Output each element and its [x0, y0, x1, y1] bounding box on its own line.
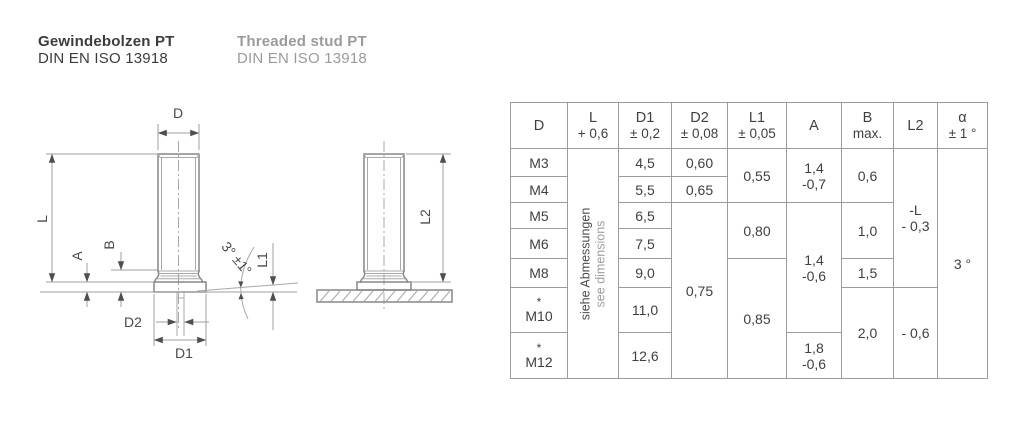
dimension-label-d1: D1	[175, 345, 193, 361]
dimension-label-l: L	[34, 215, 50, 223]
col-header-l2: L2	[894, 103, 938, 149]
row-label-m3: M3	[511, 149, 568, 177]
angle-label: 3° ±1°	[218, 239, 255, 279]
col-header-b: Bmax.	[842, 103, 894, 149]
l-note-cell: siehe Abmessungen see dimensions	[568, 149, 619, 379]
datasheet-page: Gewindebolzen PT DIN EN ISO 13918 Thread…	[0, 0, 1024, 438]
table-cell: 12,6	[619, 333, 672, 379]
col-header-a: A	[787, 103, 842, 149]
table-cell: 11,0	[619, 288, 672, 333]
table-cell: 0,6	[842, 149, 894, 203]
table-row-m3: M3 siehe Abmessungen see dimensions 4,5 …	[511, 149, 988, 177]
col-header-alpha: α± 1 °	[938, 103, 988, 149]
col-header-d: D	[511, 103, 568, 149]
stud-side-view: L2	[317, 141, 452, 309]
col-header-l1: L1± 0,05	[728, 103, 787, 149]
table-cell: 1,8 -0,6	[787, 333, 842, 379]
table-cell: 5,5	[619, 177, 672, 203]
dimension-label-l1: L1	[254, 252, 270, 268]
table-cell: 1,5	[842, 259, 894, 288]
row-label-m10: * M10	[511, 288, 568, 333]
dimension-label-l2: L2	[417, 209, 433, 225]
row-label-m5: M5	[511, 203, 568, 229]
col-header-l: L+ 0,6	[568, 103, 619, 149]
table-cell: 0,65	[672, 177, 728, 203]
l-note-de: siehe Abmessungen	[578, 207, 593, 320]
dimension-label-a: A	[69, 251, 85, 261]
table-cell: 9,0	[619, 259, 672, 288]
dimension-table: D L+ 0,6 D1± 0,2 D2± 0,08 L1± 0,05 A Bma…	[510, 102, 988, 379]
col-header-d2: D2± 0,08	[672, 103, 728, 149]
table-cell: 3 °	[938, 149, 988, 379]
table-cell: 1,4 -0,6	[787, 203, 842, 333]
table-header-row: D L+ 0,6 D1± 0,2 D2± 0,08 L1± 0,05 A Bma…	[511, 103, 988, 149]
table-cell: 7,5	[619, 229, 672, 259]
table-cell: 0,85	[728, 259, 787, 379]
table-cell: 6,5	[619, 203, 672, 229]
table-cell: 0,55	[728, 149, 787, 203]
row-label-m12: * M12	[511, 333, 568, 379]
table-cell: 1,4 -0,7	[787, 149, 842, 203]
hatching	[320, 291, 450, 302]
row-label-m6: M6	[511, 229, 568, 259]
table-cell: 0,80	[728, 203, 787, 259]
table-cell: 2,0	[842, 288, 894, 379]
table-cell: 0,75	[672, 203, 728, 379]
table-cell: 4,5	[619, 149, 672, 177]
footnote-star: *	[511, 342, 567, 354]
stud-front-view: D L A B D2 D1 3° ±	[34, 105, 298, 361]
table-cell: -L - 0,3	[894, 149, 938, 288]
table-cell: 0,60	[672, 149, 728, 177]
col-header-d1: D1± 0,2	[619, 103, 672, 149]
footnote-star: *	[511, 296, 567, 308]
dimension-label-d2: D2	[124, 314, 142, 330]
l-note-en: see dimensions	[593, 207, 608, 320]
row-label-m8: M8	[511, 259, 568, 288]
dimension-label-d: D	[173, 105, 183, 121]
table-cell: 1,0	[842, 203, 894, 259]
row-label-m4: M4	[511, 177, 568, 203]
dimension-label-b: B	[101, 240, 117, 249]
table-cell: - 0,6	[894, 288, 938, 379]
